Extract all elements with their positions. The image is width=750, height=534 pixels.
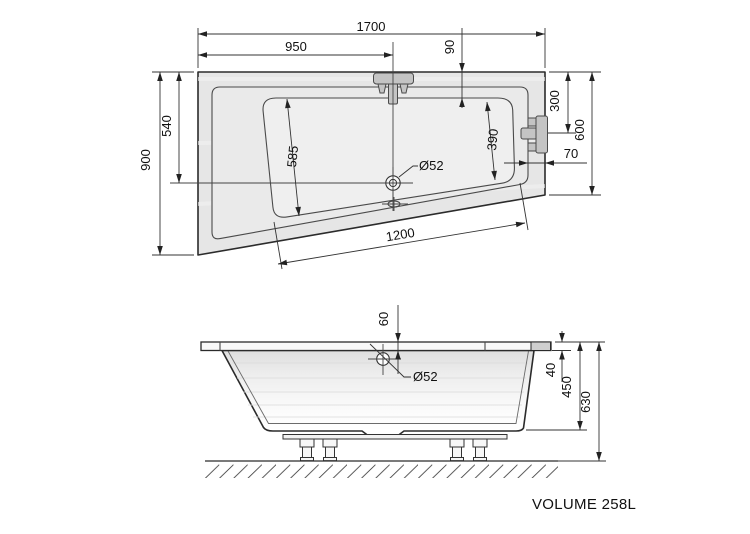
side-view: 60 Ø52 40 450 630 bbox=[201, 305, 606, 478]
support-frame bbox=[283, 435, 507, 440]
leg bbox=[300, 439, 314, 461]
dim-depth-right: 600 bbox=[572, 119, 587, 141]
dim-overflow-inset: 60 bbox=[376, 312, 391, 326]
leg bbox=[473, 439, 487, 461]
dim-shell-height: 450 bbox=[559, 376, 574, 398]
bathtub-technical-drawing: 1700 950 90 900 540 585 390 Ø52 300 600 … bbox=[0, 0, 750, 534]
dim-seat-right: 390 bbox=[484, 128, 501, 151]
dim-depth-left: 900 bbox=[138, 149, 153, 171]
dim-bottom-length: 1200 bbox=[385, 225, 416, 245]
rim-deck-end bbox=[531, 342, 551, 351]
dim-overflow-offset: 300 bbox=[547, 90, 562, 112]
drawing-canvas: 1700 950 90 900 540 585 390 Ø52 300 600 … bbox=[0, 0, 750, 534]
support-legs bbox=[300, 439, 487, 461]
dim-seat-left: 585 bbox=[284, 145, 301, 168]
dim-rim-front: 90 bbox=[442, 40, 457, 54]
top-view: 1700 950 90 900 540 585 390 Ø52 300 600 … bbox=[138, 19, 601, 269]
dim-rim-side: 70 bbox=[564, 146, 578, 161]
volume-label: VOLUME 258L bbox=[532, 496, 636, 513]
dim-overflow-diameter: Ø52 bbox=[413, 369, 438, 384]
leg bbox=[450, 439, 464, 461]
leg bbox=[323, 439, 337, 461]
dim-faucet-offset: 950 bbox=[285, 39, 307, 54]
dim-width: 1700 bbox=[357, 19, 386, 34]
dim-rim-thickness: 40 bbox=[543, 363, 558, 377]
dim-drain-diameter: Ø52 bbox=[419, 158, 444, 173]
dim-total-height: 630 bbox=[578, 391, 593, 413]
ground-hatch bbox=[205, 462, 558, 479]
dim-drain-offset: 540 bbox=[159, 115, 174, 137]
